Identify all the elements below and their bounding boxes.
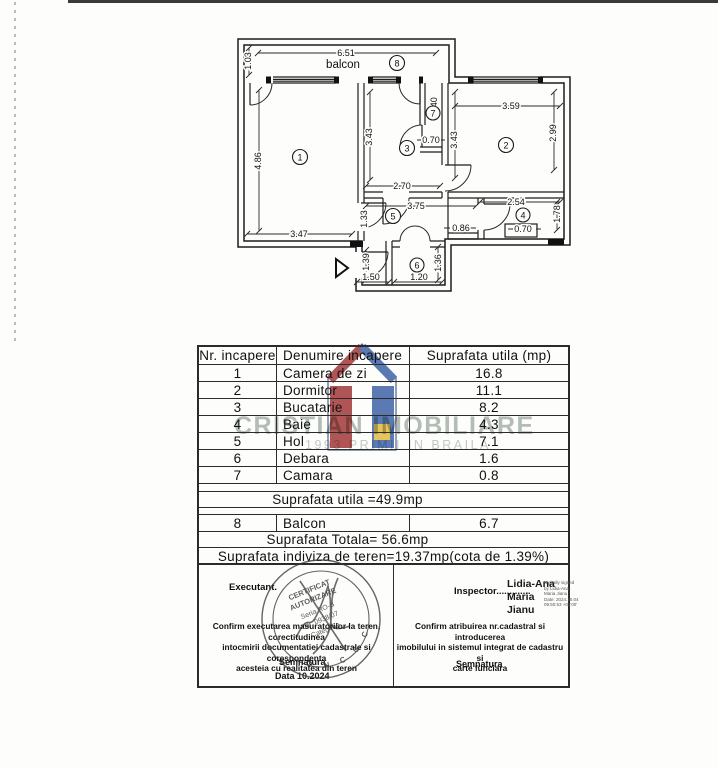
cell-name: Debara	[277, 450, 410, 466]
double-door	[400, 226, 430, 241]
scanned-cadastral-document: { "plan": { "balcony_label": "balcon", "…	[0, 0, 718, 768]
total-row: Suprafata Totala= 56.6mp	[199, 531, 568, 547]
partition-wall	[478, 198, 484, 239]
total-text: Suprafata Totala= 56.6mp	[199, 532, 568, 547]
svg-text:6: 6	[414, 261, 419, 271]
dim-label: 1.33	[359, 210, 369, 228]
room-number-7: 7	[426, 106, 440, 120]
door	[484, 204, 510, 230]
cell-area: 1.6	[410, 450, 568, 466]
dim-label: 3.43	[449, 131, 459, 149]
cell-area: 8.2	[410, 399, 568, 415]
dim-label: 6.51	[337, 48, 355, 58]
svg-text:1: 1	[297, 153, 302, 163]
cell-name: Camara	[277, 467, 410, 483]
dim-label: 1.50	[362, 272, 380, 282]
dim-label: 3.43	[364, 128, 374, 146]
scan-artifact-edge-line	[14, 2, 16, 342]
cell-name: Balcon	[277, 515, 410, 531]
dim-label: 0.70	[422, 135, 440, 145]
room-number-6: 6	[410, 258, 424, 272]
cell-nr: 8	[199, 515, 277, 531]
dim-label: 1.03	[243, 52, 253, 70]
cell-nr: 5	[199, 433, 277, 449]
cell-name: Hol	[277, 433, 410, 449]
subtotal-text: Suprafata utila =49.9mp	[199, 492, 568, 507]
header-denumire: Denumire incapere	[277, 347, 410, 364]
cell-name: Baie	[277, 416, 410, 432]
svg-text:5: 5	[390, 212, 395, 222]
room-number-3: 3	[400, 141, 415, 156]
dim-label: 1.39	[361, 253, 371, 271]
spacer-row	[199, 483, 568, 491]
partition-wall	[364, 192, 442, 198]
svg-text:8: 8	[394, 59, 399, 69]
dim-label: 1.78	[552, 205, 562, 223]
balcony-label: balcon	[326, 59, 360, 71]
dim-label: 2.54	[507, 197, 525, 207]
cell-nr: 4	[199, 416, 277, 432]
window	[473, 76, 540, 85]
partition-wall	[448, 192, 564, 198]
round-stamp: O N C G C CERTIFICAT AUTORIZARE Seria RO…	[258, 556, 384, 682]
stamp-inner-text: CERTIFICAT AUTORIZARE Seria RO-B Nr. 093…	[285, 576, 350, 643]
inspector-signature-label: Semnatura	[456, 659, 503, 669]
table-row: 3 Bucatarie 8.2	[199, 398, 568, 415]
window	[372, 76, 398, 85]
area-table: Nr. incapere Denumire incapere Suprafata…	[197, 345, 570, 564]
subtotal-row: Suprafata utila =49.9mp	[199, 491, 568, 507]
cell-nr: 6	[199, 450, 277, 466]
dim-label: 0.70	[514, 224, 532, 234]
entrance-arrow-icon	[336, 259, 348, 277]
cell-name: Bucatarie	[277, 399, 410, 415]
svg-text:2: 2	[503, 141, 508, 151]
table-row: 7 Camara 0.8	[199, 466, 568, 483]
cell-area: 6.7	[410, 515, 568, 531]
cell-name: Dormitor	[277, 382, 410, 398]
dim-label: 3.47	[290, 229, 308, 239]
balcony-row: 8 Balcon 6.7	[199, 514, 568, 531]
door	[398, 76, 421, 105]
cell-area: 7.1	[410, 433, 568, 449]
cell-name: Camera de zi	[277, 365, 410, 381]
inspector-box: Inspector............. Lidia-Ana Maria J…	[394, 565, 568, 686]
table-row: 4 Baie 4.3	[199, 415, 568, 432]
table-row: 1 Camera de zi 16.8	[199, 364, 568, 381]
dim-label: 4.86	[253, 152, 263, 170]
header-nr: Nr. incapere	[199, 347, 277, 364]
header-suprafata: Suprafata utila (mp)	[410, 347, 568, 364]
door	[445, 165, 471, 191]
dim-label: 2.99	[548, 124, 558, 142]
dim-label: 0.86	[452, 223, 470, 233]
svg-text:4: 4	[520, 211, 525, 221]
floor-plan: 6.51 1.03 4.86 3.47 3.43 2.70 1.40 0.70 …	[228, 30, 578, 300]
table-row: 5 Hol 7.1	[199, 432, 568, 449]
svg-text:7: 7	[430, 109, 435, 119]
cell-area: 4.3	[410, 416, 568, 432]
table-row: 2 Dormitor 11.1	[199, 381, 568, 398]
dim-label: 1.36	[433, 254, 443, 272]
cell-nr: 1	[199, 365, 277, 381]
room-number-4: 4	[516, 208, 530, 222]
dim-label: 3.59	[502, 101, 520, 111]
cell-nr: 2	[199, 382, 277, 398]
cell-area: 11.1	[410, 382, 568, 398]
digital-signature-details: Digitally signed by Lidia-Ana- Maria Jia…	[544, 580, 594, 608]
window	[270, 76, 336, 85]
room-number-2: 2	[499, 138, 514, 153]
cell-nr: 3	[199, 399, 277, 415]
svg-text:3: 3	[404, 144, 409, 154]
room-number-8: 8	[390, 56, 405, 71]
partition-wall	[442, 83, 448, 198]
cell-nr: 7	[199, 467, 277, 483]
room-number-1: 1	[293, 150, 308, 165]
dim-label: 2.70	[393, 181, 411, 191]
cell-area: 0.8	[410, 467, 568, 483]
table-header-row: Nr. incapere Denumire incapere Suprafata…	[199, 347, 568, 364]
cell-area: 16.8	[410, 365, 568, 381]
room-number-5: 5	[386, 209, 401, 224]
spacer-row	[199, 507, 568, 514]
dim-label: 1.20	[410, 272, 428, 282]
dim-label: 3.75	[407, 201, 425, 211]
table-row: 6 Debara 1.6	[199, 449, 568, 466]
scan-artifact-top-bar	[68, 0, 718, 3]
